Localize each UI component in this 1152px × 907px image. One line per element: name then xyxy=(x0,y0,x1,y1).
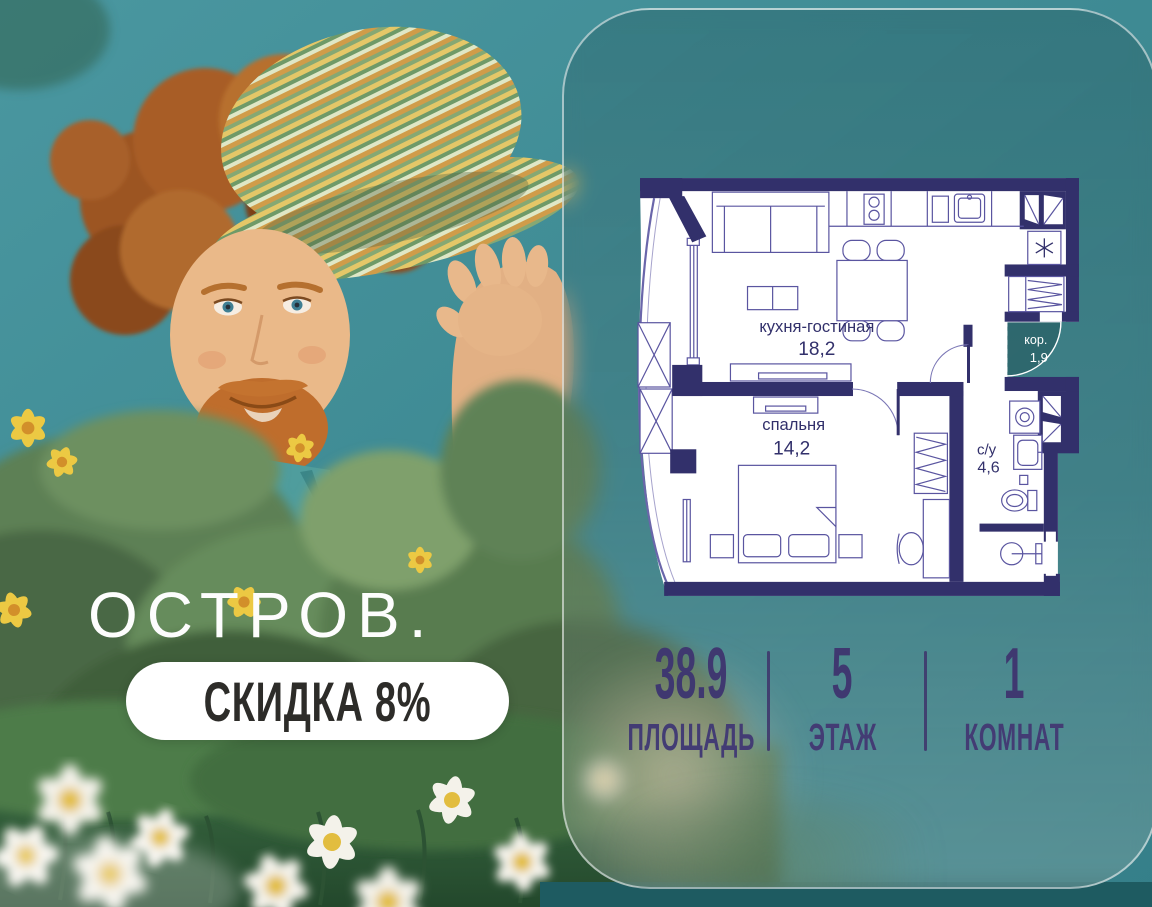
hall-wardrobe xyxy=(1009,277,1064,312)
stat-area-value: 38.9 xyxy=(655,640,728,708)
stat-rooms: 1 КОМНАТ xyxy=(934,640,1094,760)
room-area-bathroom: 4,6 xyxy=(977,458,999,476)
washing-machine xyxy=(1010,401,1040,433)
stat-rooms-value: 1 xyxy=(1004,640,1025,708)
promo-banner: ОСТРОВ. СКИДКА 8% xyxy=(0,0,1152,907)
room-label-corridor: кор. xyxy=(1024,333,1047,347)
stat-floor: 5 ЭТАЖ xyxy=(789,640,896,760)
room-label-bathroom: с/у xyxy=(977,441,997,458)
apartment-card: кухня-гостиная 18,2 спальня 14,2 с/у 4,6… xyxy=(562,8,1152,889)
brand-logo: ОСТРОВ. xyxy=(88,583,436,647)
room-label-bedroom: спальня xyxy=(762,415,825,434)
wardrobe xyxy=(914,433,947,493)
floor-plan: кухня-гостиная 18,2 спальня 14,2 с/у 4,6… xyxy=(630,176,1082,598)
room-area-corridor: 1,9 xyxy=(1030,350,1048,365)
stat-area-label: ПЛОЩАДЬ xyxy=(628,717,756,760)
stat-floor-value: 5 xyxy=(832,640,853,708)
stat-floor-label: ЭТАЖ xyxy=(808,717,876,760)
stats-divider xyxy=(924,651,927,751)
stat-area: 38.9 ПЛОЩАДЬ xyxy=(594,640,789,760)
room-area-bedroom: 14,2 xyxy=(773,438,810,459)
room-label-kitchen: кухня-гостиная xyxy=(759,317,874,336)
fridge xyxy=(1028,231,1061,264)
blurred-grass-blob xyxy=(562,800,984,889)
discount-badge-label: СКИДКА 8% xyxy=(204,669,432,734)
bathroom-sink xyxy=(1014,435,1043,469)
stat-rooms-label: КОМНАТ xyxy=(964,717,1064,760)
shower-partition xyxy=(980,524,1044,532)
room-area-kitchen: 18,2 xyxy=(798,339,835,360)
discount-badge: СКИДКА 8% xyxy=(126,662,509,740)
floor-plan-svg: кухня-гостиная 18,2 спальня 14,2 с/у 4,6… xyxy=(630,176,1082,598)
